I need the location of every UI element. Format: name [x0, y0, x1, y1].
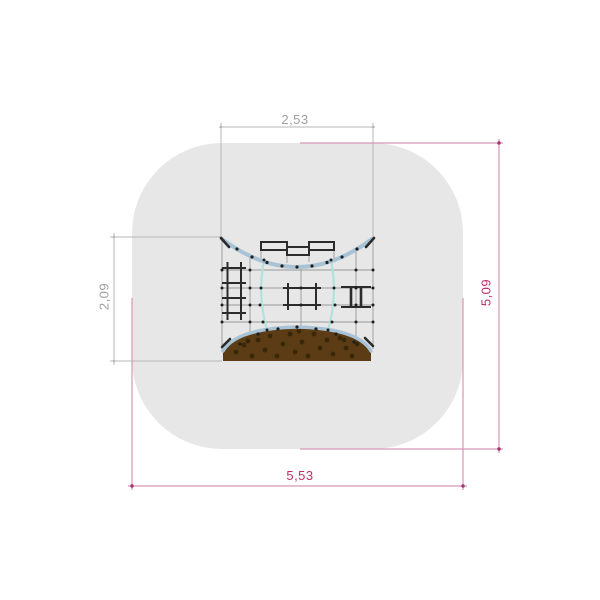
site-plan-drawing [0, 0, 600, 600]
plan-drawing-canvas: 2,53 2,09 5,53 5,09 [0, 0, 600, 600]
dim-equipment-width-label: 2,53 [265, 112, 325, 127]
dim-zone-width-label: 5,53 [270, 468, 330, 483]
safety-zone-area [132, 143, 463, 449]
dim-equipment-depth-label: 2,09 [97, 267, 112, 327]
dim-zone-length-label: 5,09 [479, 263, 494, 323]
